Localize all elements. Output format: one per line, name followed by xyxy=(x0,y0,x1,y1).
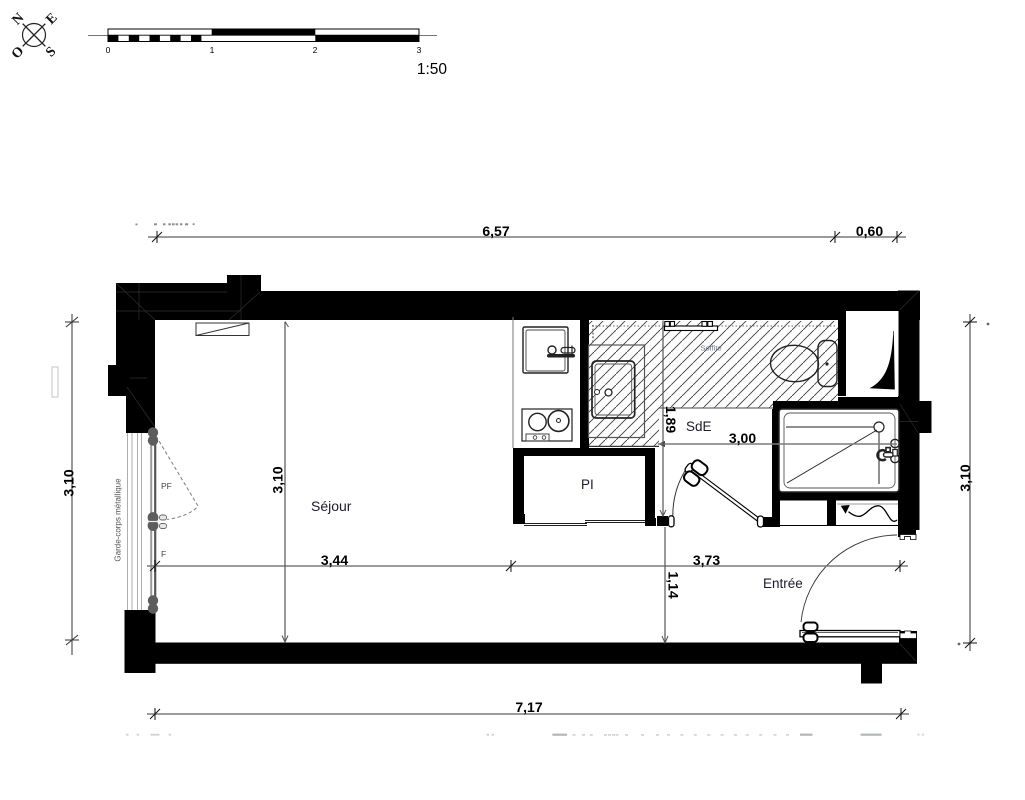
svg-text:Entrée: Entrée xyxy=(763,576,803,591)
svg-text:SdE: SdE xyxy=(686,419,712,434)
svg-text:PF: PF xyxy=(161,481,172,491)
svg-text:0: 0 xyxy=(106,45,111,55)
svg-text:3,10: 3,10 xyxy=(61,469,77,496)
svg-text:1: 1 xyxy=(210,45,215,55)
svg-text:Garde-corps métallique: Garde-corps métallique xyxy=(114,478,123,562)
svg-text:2: 2 xyxy=(313,45,318,55)
svg-text:E: E xyxy=(43,10,60,27)
svg-text:O: O xyxy=(9,44,27,62)
svg-text:3,10: 3,10 xyxy=(270,466,286,493)
svg-text:0,60: 0,60 xyxy=(856,223,883,239)
svg-text:3,10: 3,10 xyxy=(957,464,973,491)
svg-text:7,17: 7,17 xyxy=(515,699,542,715)
svg-text:3,00: 3,00 xyxy=(729,430,756,446)
svg-text:Séjour: Séjour xyxy=(311,498,352,514)
svg-text:6,57: 6,57 xyxy=(482,223,509,239)
svg-text:1,89: 1,89 xyxy=(663,406,679,433)
svg-text:3,73: 3,73 xyxy=(693,552,720,568)
svg-text:Soffite: Soffite xyxy=(701,344,722,353)
svg-text:F: F xyxy=(161,549,166,559)
svg-text:S: S xyxy=(43,44,59,60)
svg-text:PI: PI xyxy=(581,477,594,492)
svg-text:1,14: 1,14 xyxy=(666,571,682,598)
svg-text:1:50: 1:50 xyxy=(417,61,448,78)
svg-text:3: 3 xyxy=(417,45,422,55)
svg-text:3,44: 3,44 xyxy=(321,552,348,568)
